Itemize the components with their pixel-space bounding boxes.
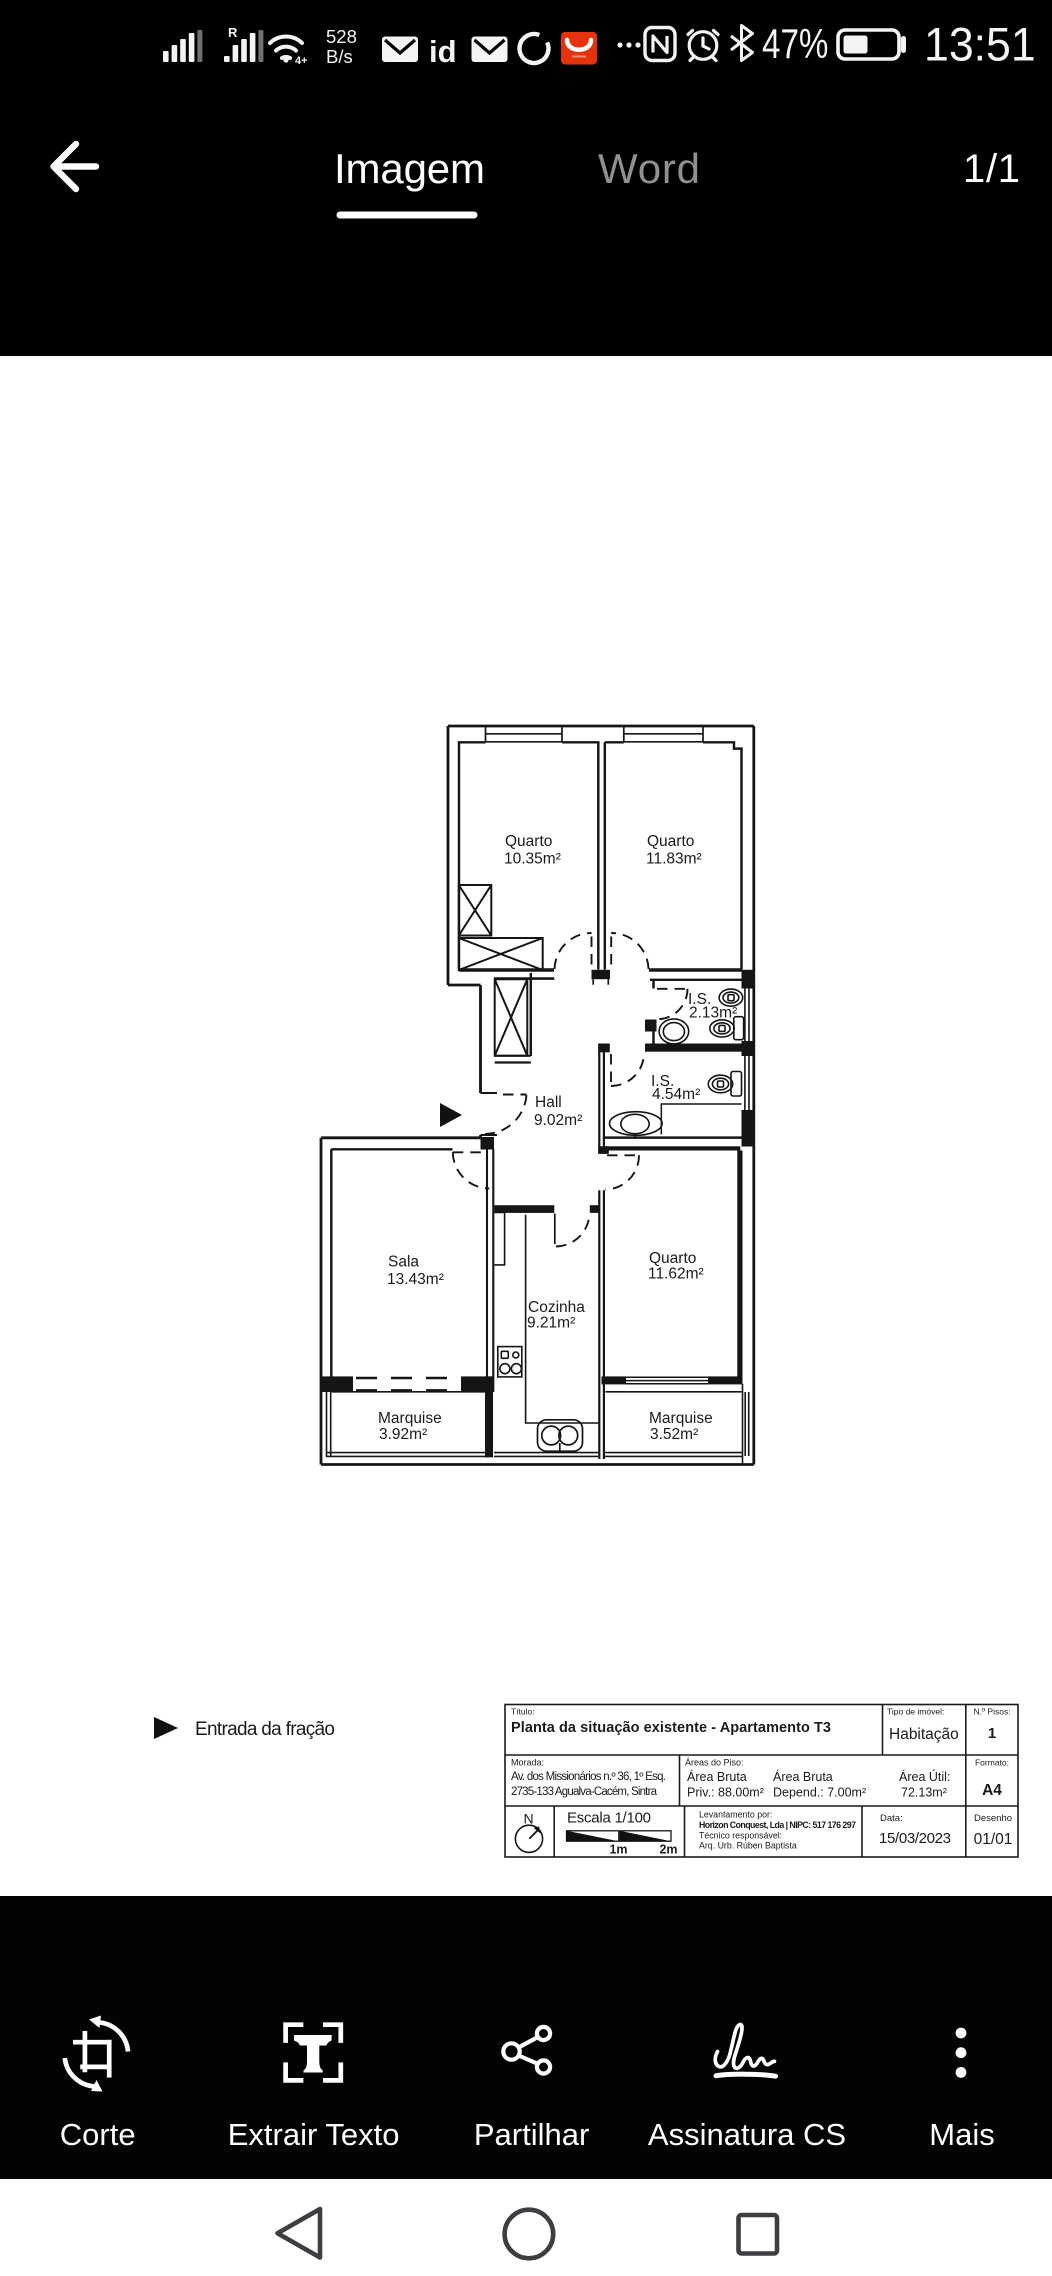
svg-text:Área Bruta: Área Bruta bbox=[773, 1769, 833, 1784]
svg-text:2.13m²: 2.13m² bbox=[689, 1005, 737, 1022]
svg-text:Título:: Título: bbox=[511, 1707, 535, 1717]
svg-text:47%: 47% bbox=[762, 21, 828, 68]
svg-text:id: id bbox=[429, 34, 457, 69]
svg-text:Imagem: Imagem bbox=[334, 145, 485, 192]
svg-text:11.83m²: 11.83m² bbox=[646, 851, 702, 868]
svg-text:Entrada da fração: Entrada da fração bbox=[195, 1719, 335, 1740]
svg-text:Av. dos Missionários n.º 36, 1: Av. dos Missionários n.º 36, 1º Esq. bbox=[511, 1771, 666, 1783]
svg-text:Área Útil:: Área Útil: bbox=[899, 1769, 950, 1784]
svg-text:11.62m²: 11.62m² bbox=[648, 1266, 704, 1283]
svg-text:3.92m²: 3.92m² bbox=[379, 1426, 427, 1443]
svg-text:Marquise: Marquise bbox=[378, 1410, 442, 1427]
svg-text:13.43m²: 13.43m² bbox=[387, 1271, 444, 1288]
svg-text:Data:: Data: bbox=[880, 1813, 903, 1824]
svg-text:2m: 2m bbox=[659, 1843, 677, 1857]
svg-text:Cozinha: Cozinha bbox=[528, 1299, 585, 1316]
svg-text:Hall: Hall bbox=[535, 1094, 562, 1111]
svg-text:Arq. Urb. Rúben Baptista: Arq. Urb. Rúben Baptista bbox=[699, 1841, 797, 1851]
svg-text:Desenho: Desenho bbox=[974, 1813, 1012, 1824]
svg-text:N.º Pisos:: N.º Pisos: bbox=[973, 1707, 1010, 1717]
svg-text:Técnico responsável:: Técnico responsável: bbox=[699, 1831, 782, 1841]
svg-text:Depend.: 7.00m²: Depend.: 7.00m² bbox=[773, 1786, 866, 1800]
svg-text:1m: 1m bbox=[609, 1843, 627, 1857]
svg-text:Corte: Corte bbox=[60, 2117, 136, 2152]
svg-text:Priv.: 88.00m²: Priv.: 88.00m² bbox=[687, 1786, 764, 1800]
svg-text:Marquise: Marquise bbox=[649, 1410, 713, 1427]
svg-text:Mais: Mais bbox=[929, 2117, 994, 2152]
svg-text:9.02m²: 9.02m² bbox=[534, 1112, 582, 1129]
svg-text:Morada:: Morada: bbox=[511, 1758, 544, 1768]
svg-text:Extrair Texto: Extrair Texto bbox=[228, 2117, 400, 2152]
svg-text:R: R bbox=[228, 25, 238, 40]
svg-text:Sala: Sala bbox=[388, 1254, 419, 1271]
svg-text:4.54m²: 4.54m² bbox=[652, 1086, 700, 1103]
svg-text:Planta da situação existente -: Planta da situação existente - Apartamen… bbox=[511, 1720, 831, 1736]
svg-text:3.52m²: 3.52m² bbox=[650, 1426, 698, 1443]
svg-text:B/s: B/s bbox=[326, 46, 353, 67]
svg-text:9.21m²: 9.21m² bbox=[527, 1315, 575, 1332]
svg-text:2735-133 Agualva-Cacém, Sintra: 2735-133 Agualva-Cacém, Sintra bbox=[511, 1786, 658, 1798]
svg-text:10.35m²: 10.35m² bbox=[504, 851, 561, 868]
svg-text:Área Bruta: Área Bruta bbox=[687, 1769, 747, 1784]
svg-text:528: 528 bbox=[326, 26, 357, 47]
svg-text:A4: A4 bbox=[982, 1782, 1002, 1799]
svg-text:Formato:: Formato: bbox=[975, 1758, 1009, 1768]
svg-text:Horizon Conquest, Lda | NIPC:: Horizon Conquest, Lda | NIPC: 517 176 29… bbox=[699, 1820, 856, 1830]
svg-text:01/01: 01/01 bbox=[974, 1831, 1013, 1848]
svg-text:4+: 4+ bbox=[295, 55, 308, 67]
svg-text:Áreas do Piso:: Áreas do Piso: bbox=[685, 1758, 744, 1768]
svg-text:15/03/2023: 15/03/2023 bbox=[879, 1830, 951, 1847]
svg-text:Escala 1/100: Escala 1/100 bbox=[567, 1810, 651, 1827]
svg-text:13:51: 13:51 bbox=[924, 18, 1036, 70]
svg-text:Assinatura CS: Assinatura CS bbox=[648, 2117, 846, 2152]
svg-text:Habitação: Habitação bbox=[889, 1726, 959, 1743]
svg-text:Word: Word bbox=[598, 145, 700, 192]
svg-text:Partilhar: Partilhar bbox=[474, 2117, 589, 2152]
svg-text:Quarto: Quarto bbox=[505, 833, 552, 850]
svg-text:1: 1 bbox=[988, 1725, 996, 1742]
svg-text:1/1: 1/1 bbox=[963, 147, 1020, 191]
svg-text:Quarto: Quarto bbox=[647, 833, 694, 850]
svg-text:72.13m²: 72.13m² bbox=[901, 1786, 947, 1800]
svg-text:Levantamento por:: Levantamento por: bbox=[699, 1810, 772, 1820]
svg-text:N: N bbox=[523, 1811, 533, 1827]
svg-text:Tipo de imóvel:: Tipo de imóvel: bbox=[887, 1707, 944, 1717]
svg-text:Quarto: Quarto bbox=[649, 1250, 696, 1267]
